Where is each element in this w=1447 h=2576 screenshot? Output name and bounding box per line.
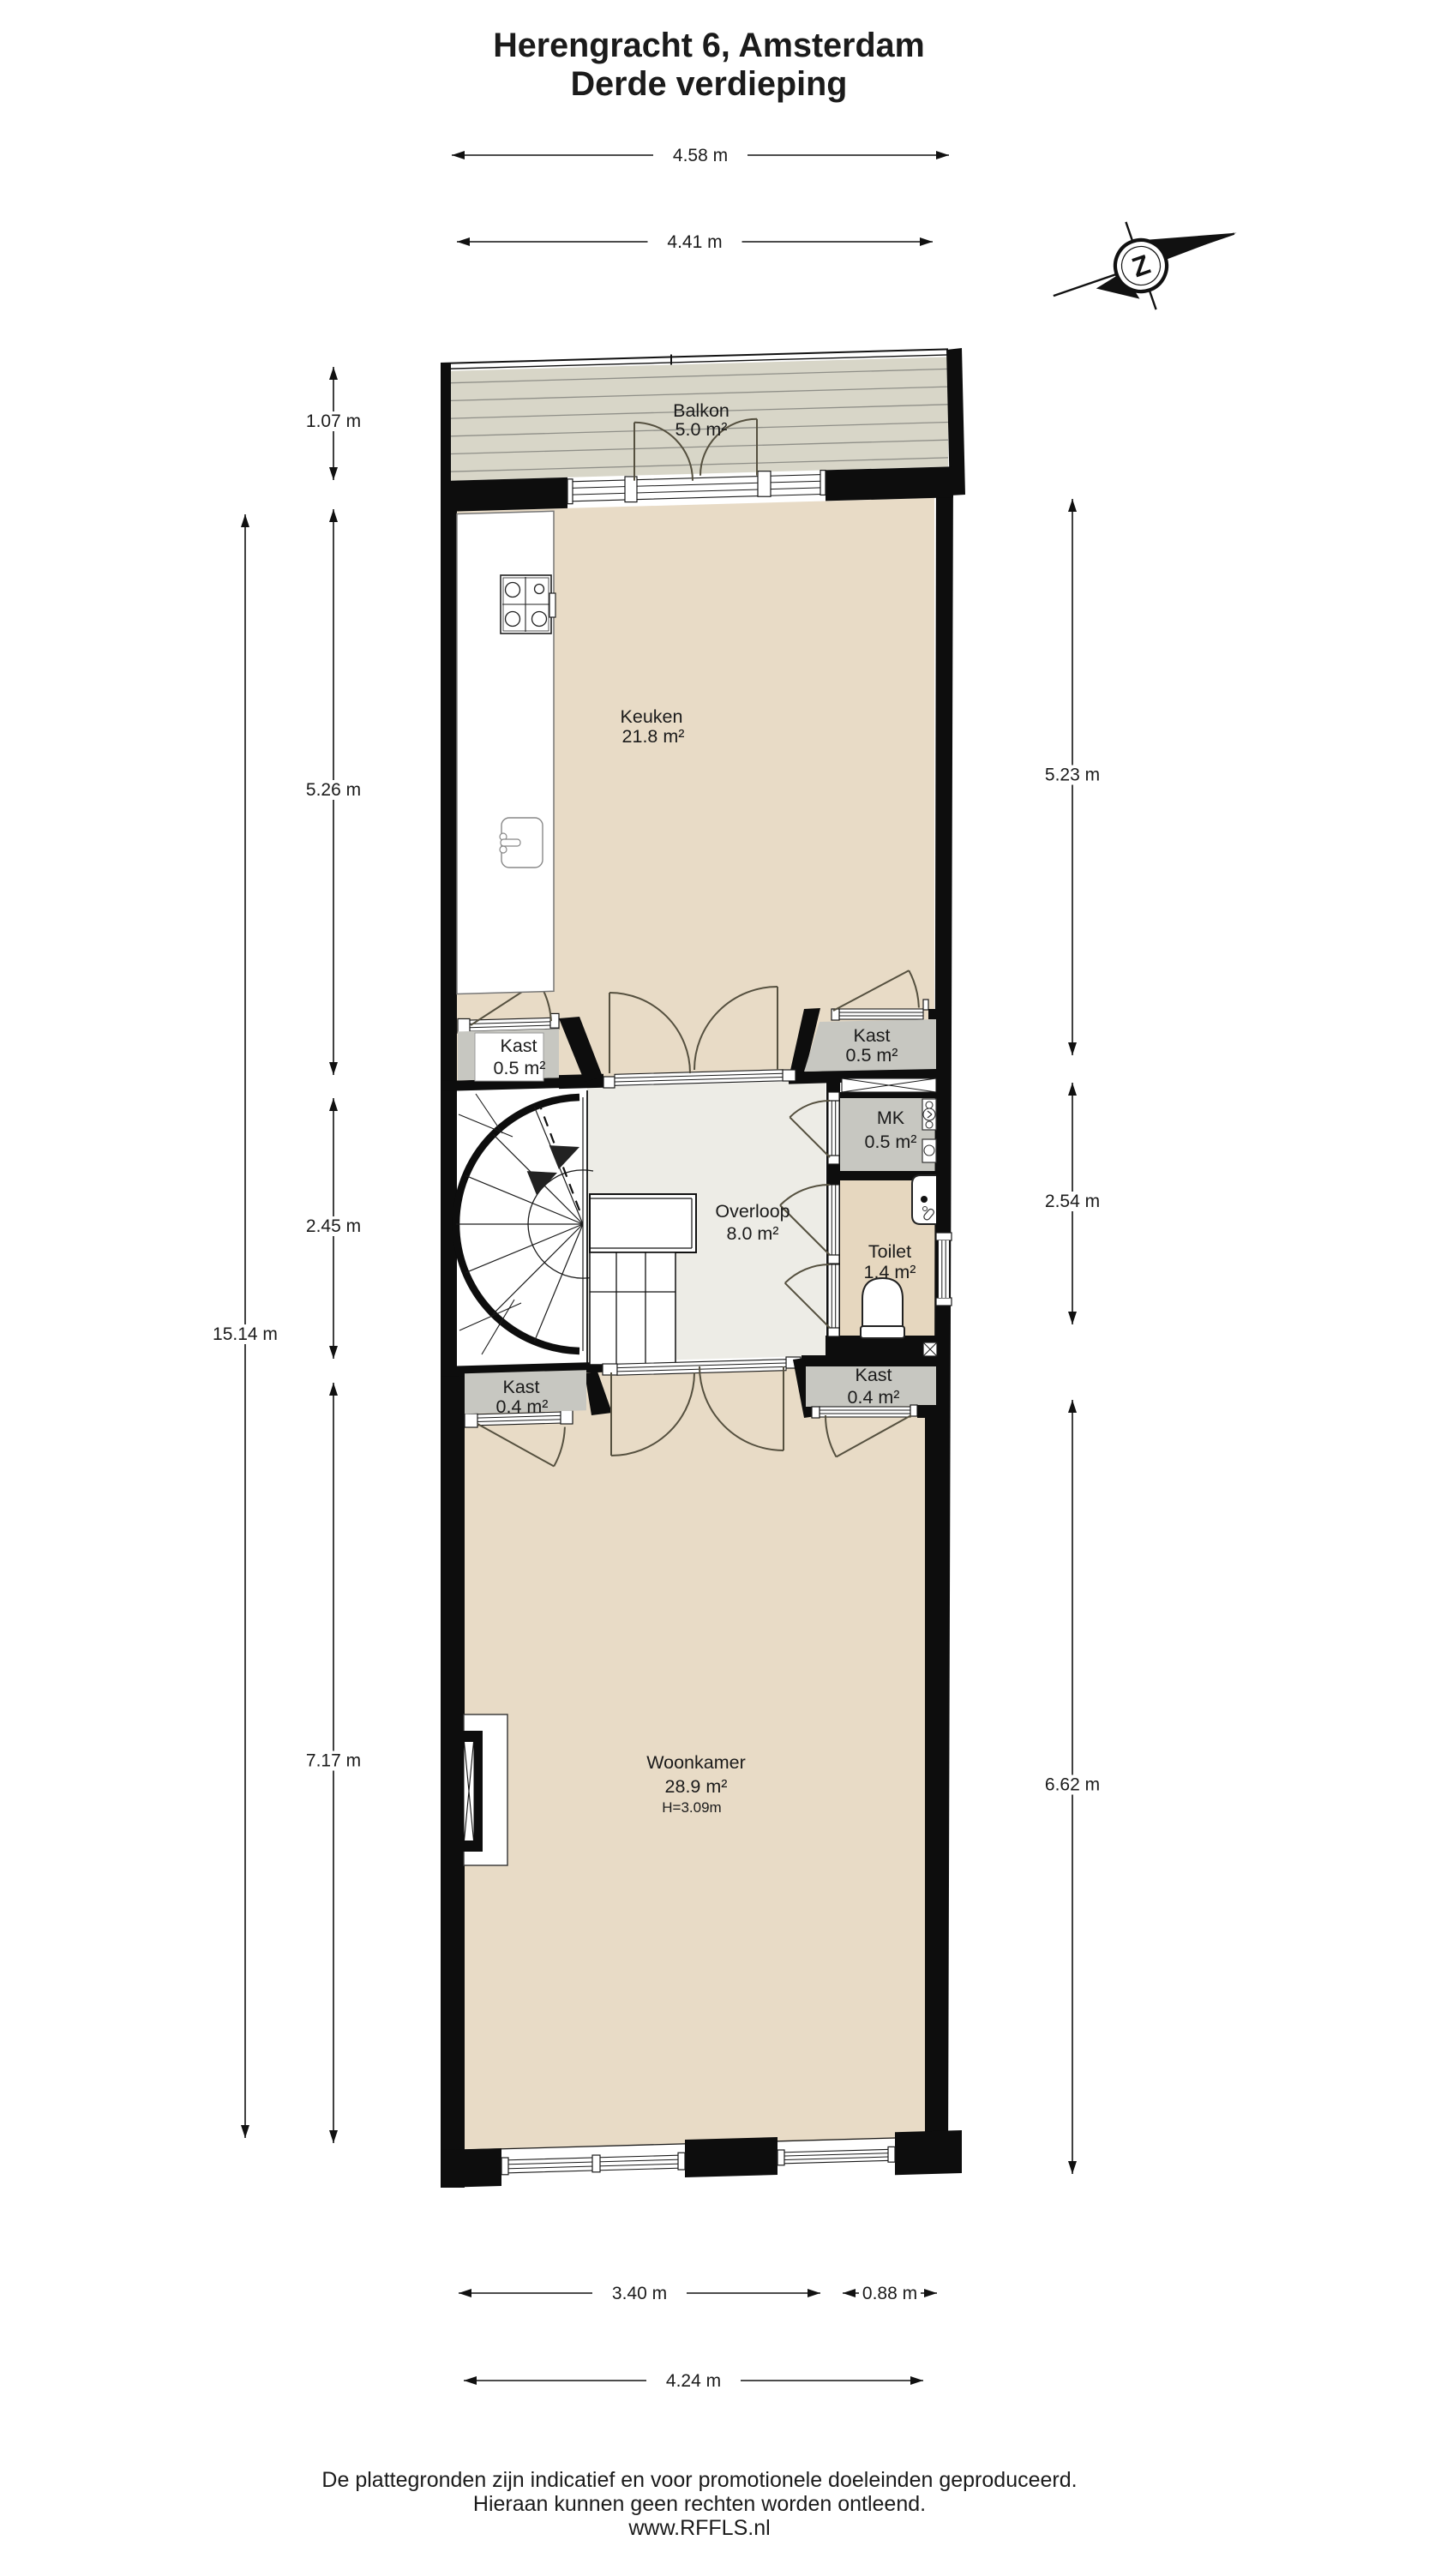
svg-text:1.07 m: 1.07 m: [306, 411, 361, 431]
svg-text:Kast: Kast: [855, 1365, 892, 1385]
svg-text:0.4 m²: 0.4 m²: [496, 1396, 549, 1417]
svg-text:15.14 m: 15.14 m: [213, 1324, 278, 1344]
svg-text:5.26 m: 5.26 m: [306, 780, 361, 800]
svg-text:8.0 m²: 8.0 m²: [727, 1223, 779, 1244]
svg-text:0.5 m²: 0.5 m²: [865, 1132, 917, 1152]
svg-text:Hieraan kunnen geen rechten wo: Hieraan kunnen geen rechten worden ontle…: [473, 2492, 926, 2516]
svg-text:4.41 m: 4.41 m: [667, 232, 722, 252]
svg-text:4.24 m: 4.24 m: [666, 2371, 721, 2391]
svg-text:2.54 m: 2.54 m: [1045, 1192, 1100, 1211]
svg-text:4.58 m: 4.58 m: [673, 146, 728, 165]
svg-text:0.5 m²: 0.5 m²: [494, 1058, 546, 1078]
svg-text:Toilet: Toilet: [868, 1241, 911, 1262]
svg-text:3.40 m: 3.40 m: [612, 2284, 667, 2303]
svg-text:Overloop: Overloop: [715, 1201, 790, 1222]
svg-text:Derde verdieping: Derde verdieping: [571, 65, 848, 103]
svg-text:7.17 m: 7.17 m: [306, 1751, 361, 1771]
svg-text:Herengracht 6, Amsterdam: Herengracht 6, Amsterdam: [493, 27, 924, 64]
svg-text:0.4 m²: 0.4 m²: [848, 1387, 900, 1408]
svg-text:H=3.09m: H=3.09m: [662, 1799, 721, 1816]
svg-text:MK: MK: [877, 1108, 905, 1128]
svg-text:Woonkamer: Woonkamer: [646, 1752, 746, 1773]
svg-text:6.62 m: 6.62 m: [1045, 1775, 1100, 1795]
svg-text:www.RFFLS.nl: www.RFFLS.nl: [627, 2516, 770, 2540]
svg-text:5.0 m²: 5.0 m²: [675, 419, 728, 440]
svg-text:0.5 m²: 0.5 m²: [846, 1045, 898, 1066]
svg-text:5.23 m: 5.23 m: [1045, 766, 1100, 785]
svg-text:0.88 m: 0.88 m: [862, 2284, 917, 2303]
svg-text:Kast: Kast: [853, 1025, 890, 1046]
svg-text:1.4 m²: 1.4 m²: [864, 1262, 916, 1282]
svg-text:2.45 m: 2.45 m: [306, 1216, 361, 1236]
svg-text:De plattegronden zijn indicati: De plattegronden zijn indicatief en voor…: [321, 2468, 1077, 2492]
svg-text:Kast: Kast: [500, 1036, 537, 1056]
svg-text:Balkon: Balkon: [673, 400, 730, 421]
svg-text:28.9 m²: 28.9 m²: [665, 1776, 728, 1797]
svg-text:Kast: Kast: [502, 1377, 539, 1397]
svg-text:Keuken: Keuken: [621, 706, 683, 727]
svg-text:21.8 m²: 21.8 m²: [622, 726, 685, 747]
